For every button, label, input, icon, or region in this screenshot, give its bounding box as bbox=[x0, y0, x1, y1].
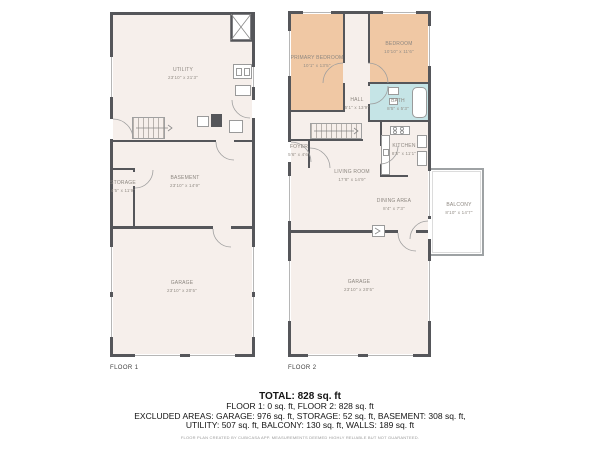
room-name: BALCONY bbox=[445, 202, 472, 209]
floor2-plan: PRIMARY BEDROOM 10'1" x 13'5" BEDROOM 10… bbox=[288, 11, 431, 357]
room-label-bedroom: BEDROOM 10'10" x 11'6" bbox=[384, 41, 414, 55]
room-dims: 8'10" x 14'7" bbox=[445, 209, 472, 216]
door-swing-arcs bbox=[113, 100, 250, 247]
step-arrow-icon bbox=[375, 228, 380, 234]
room-dims: 5'1" x 13'9" bbox=[345, 104, 370, 111]
room-name: UTILITY bbox=[168, 67, 198, 74]
room-name: GARAGE bbox=[344, 279, 374, 286]
room-dims: 8'5" x 11'1" bbox=[392, 150, 416, 157]
room-name: STORAGE bbox=[110, 180, 136, 187]
room-dims: 23'10" x 20'5" bbox=[344, 286, 374, 293]
stairs-arrow-icon bbox=[136, 125, 172, 131]
stairs-arrow-icon bbox=[314, 128, 358, 134]
door-swing-arcs bbox=[291, 63, 428, 251]
room-name: DINING AREA bbox=[377, 198, 411, 205]
room-dims: 4'5" x 11'9" bbox=[110, 187, 136, 194]
floor1-plan: UTILITY 23'10" x 21'3" STORAGE 4'5" x 11… bbox=[110, 12, 255, 357]
room-label-bath: BATH 8'5" x 5'3" bbox=[387, 98, 409, 112]
room-dims: 10'10" x 11'6" bbox=[384, 48, 414, 55]
burner-icon bbox=[394, 127, 397, 130]
room-label-utility: UTILITY 23'10" x 21'3" bbox=[168, 67, 198, 81]
room-dims: 8'4" x 7'3" bbox=[377, 205, 411, 212]
room-name: HALL bbox=[345, 97, 370, 104]
floor1-tag: FLOOR 1 bbox=[110, 365, 138, 371]
room-label-dining-area: DINING AREA 8'4" x 7'3" bbox=[377, 198, 411, 212]
room-label-storage: STORAGE 4'5" x 11'9" bbox=[110, 180, 136, 194]
room-label-basement: BASEMENT 23'10" x 14'9" bbox=[170, 175, 200, 189]
room-label-garage1: GARAGE 23'10" x 20'5" bbox=[167, 280, 197, 294]
room-label-foyer: FOYER 5'6" x 4'6" bbox=[288, 144, 310, 158]
excluded-areas-line2: UTILITY: 507 sq. ft, BALCONY: 130 sq. ft… bbox=[0, 421, 600, 431]
room-label-living-room: LIVING ROOM 17'8" x 14'9" bbox=[334, 169, 370, 183]
room-dims: 23'10" x 14'9" bbox=[170, 182, 200, 189]
room-name: BEDROOM bbox=[384, 41, 414, 48]
room-dims: 23'10" x 21'3" bbox=[168, 74, 198, 81]
room-dims: 5'6" x 4'6" bbox=[288, 151, 310, 158]
room-label-kitchen: KITCHEN 8'5" x 11'1" bbox=[392, 143, 416, 157]
room-label-balcony: BALCONY 8'10" x 14'7" bbox=[445, 202, 472, 216]
floor2-tag: FLOOR 2 bbox=[288, 365, 316, 371]
room-name: FOYER bbox=[288, 144, 310, 151]
room-name: GARAGE bbox=[167, 280, 197, 287]
burner-icon bbox=[401, 131, 404, 134]
area-summary: TOTAL: 828 sq. ft FLOOR 1: 0 sq. ft, FLO… bbox=[0, 391, 600, 440]
room-label-hall: HALL 5'1" x 13'9" bbox=[345, 97, 370, 111]
room-dims: 10'1" x 13'5" bbox=[291, 62, 344, 69]
burner-icon bbox=[394, 131, 397, 134]
room-name: KITCHEN bbox=[392, 143, 416, 150]
burner-icon bbox=[401, 127, 404, 130]
floorplan-page: UTILITY 23'10" x 21'3" STORAGE 4'5" x 11… bbox=[0, 0, 600, 450]
room-name: BASEMENT bbox=[170, 175, 200, 182]
room-dims: 23'10" x 20'5" bbox=[167, 287, 197, 294]
room-dims: 17'8" x 14'9" bbox=[334, 176, 370, 183]
room-name: LIVING ROOM bbox=[334, 169, 370, 176]
room-name: BATH bbox=[387, 98, 409, 105]
room-name: PRIMARY BEDROOM bbox=[291, 55, 344, 62]
room-dims: 8'5" x 5'3" bbox=[387, 105, 409, 112]
balcony: BALCONY 8'10" x 14'7" bbox=[429, 168, 484, 256]
disclaimer: FLOOR PLAN CREATED BY CUBICASA APP. MEAS… bbox=[0, 435, 600, 440]
room-label-garage2: GARAGE 23'10" x 20'5" bbox=[344, 279, 374, 293]
room-label-primary-bedroom: PRIMARY BEDROOM 10'1" x 13'5" bbox=[291, 55, 344, 69]
